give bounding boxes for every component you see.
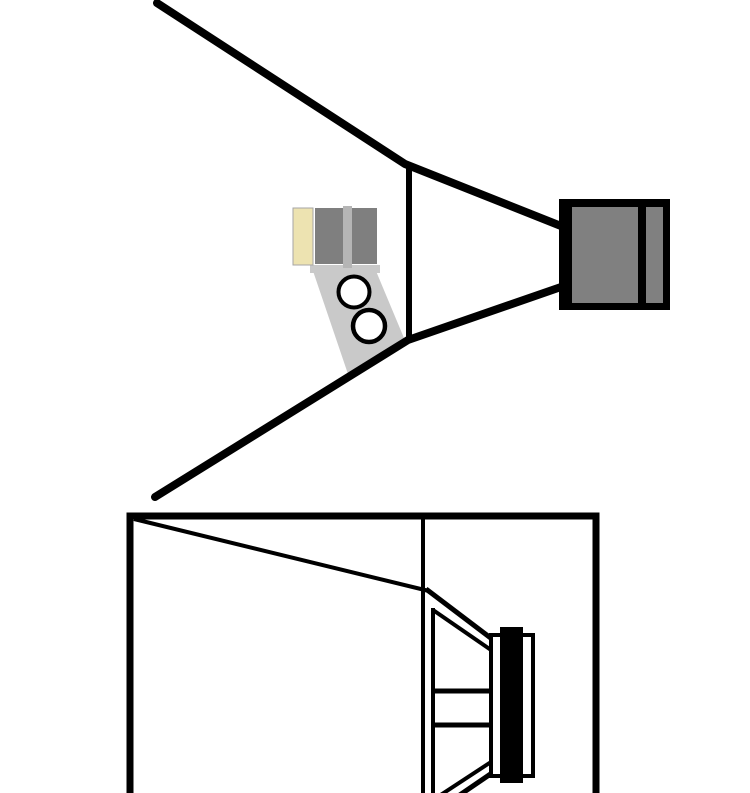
drawing-canvas <box>0 0 750 793</box>
cabinet-brace-line <box>134 519 429 591</box>
horn-panel-left <box>315 208 343 264</box>
horn-diagram <box>155 3 670 497</box>
horn-panel-right <box>352 208 377 264</box>
woofer-magnet <box>500 627 523 783</box>
horn-center-strip <box>343 206 352 268</box>
horn-tan-panel <box>293 208 313 265</box>
cabinet-diagram <box>130 516 596 793</box>
bracket-hole-bottom <box>353 310 385 342</box>
driver-back-strip <box>646 207 663 303</box>
horn-top-wall <box>157 3 561 226</box>
bracket-hole-top <box>339 277 370 308</box>
diagram-svg <box>0 0 750 793</box>
driver-body <box>572 207 638 303</box>
